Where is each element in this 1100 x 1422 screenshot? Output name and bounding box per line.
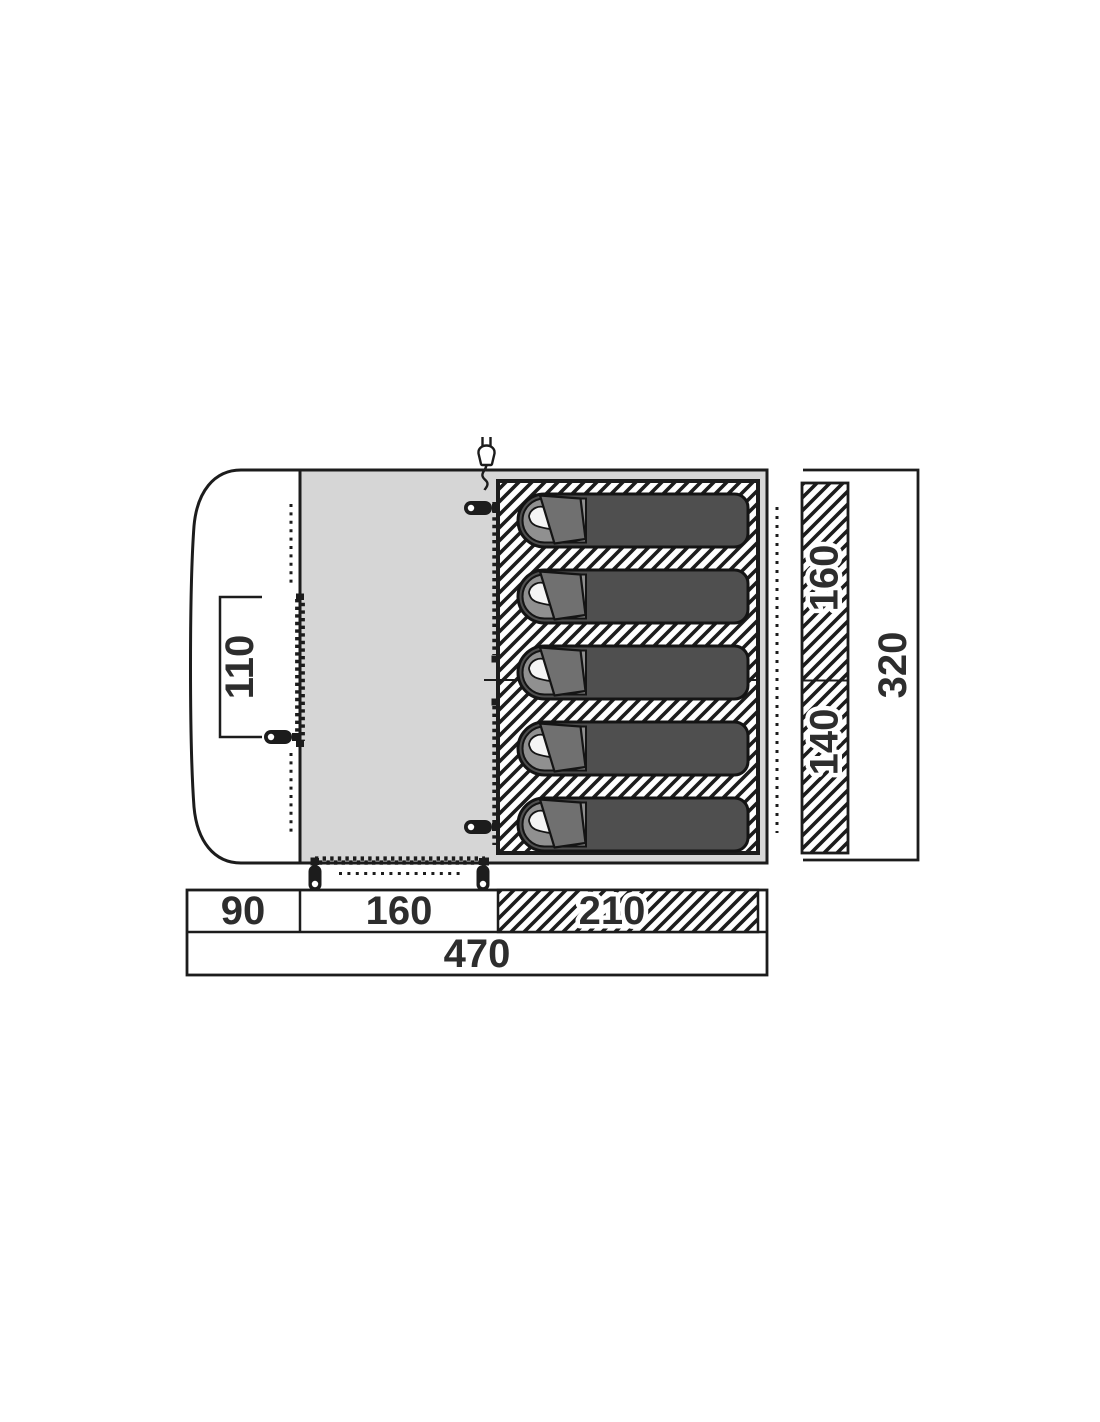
dim-width-bands: 90 160 210 470 [187,889,767,976]
dim-label-bedroom-depth: 210 [579,889,646,933]
sleeping-bag [518,570,748,623]
sleeping-bag [518,798,748,851]
tent-floorplan-diagram: 110 160 140 320 90 160 210 470 [0,0,1100,1422]
dim-label-bedroom-top: 160 [803,545,847,612]
sleeping-bags [518,494,748,851]
sleeping-bag [518,646,748,699]
sleeping-bag [518,494,748,547]
dim-label-total-depth: 320 [871,632,915,699]
sleeping-bag [518,722,748,775]
tent-floorplan-page: 110 160 140 320 90 160 210 470 [0,0,1100,1422]
dim-label-porch-depth: 90 [221,889,266,933]
dim-bedroom-sections: 160 140 [802,483,848,853]
dim-label-porch-width: 110 [218,635,262,700]
dim-label-bedroom-bottom: 140 [803,709,847,776]
dim-label-living-width: 160 [366,889,433,933]
dim-label-total-width: 470 [444,932,511,976]
